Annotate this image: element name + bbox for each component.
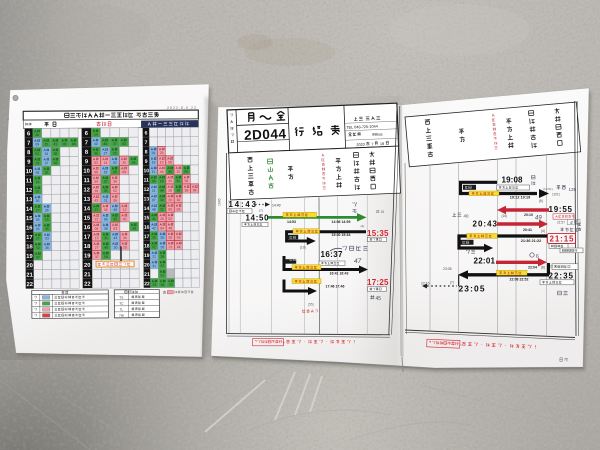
svg-text:59: 59 xyxy=(104,255,108,259)
svg-text:22:16: 22:16 xyxy=(421,281,430,285)
svg-text:25: 25 xyxy=(44,142,48,146)
svg-text:27: 27 xyxy=(95,246,99,250)
svg-text:46: 46 xyxy=(160,189,164,193)
svg-text:21:36 21:22: 21:36 21:22 xyxy=(521,239,541,243)
svg-text:22: 22 xyxy=(26,282,32,288)
svg-text:19:51: 19:51 xyxy=(552,193,560,197)
svg-text:02: 02 xyxy=(113,161,117,165)
svg-text:7: 7 xyxy=(371,142,373,146)
svg-text:50: 50 xyxy=(168,160,172,164)
svg-text:42: 42 xyxy=(152,226,156,230)
svg-text:04: 04 xyxy=(161,283,165,287)
svg-text:19:08: 19:08 xyxy=(502,175,524,184)
svg-text:36: 36 xyxy=(104,227,108,231)
svg-text:35: 35 xyxy=(152,236,156,240)
svg-text:7L: 7L xyxy=(120,308,124,312)
svg-text:26: 26 xyxy=(160,217,164,221)
svg-text:44: 44 xyxy=(160,170,164,174)
svg-text:43: 43 xyxy=(113,236,117,240)
svg-text:25: 25 xyxy=(113,151,117,155)
svg-text:38: 38 xyxy=(160,255,164,259)
svg-text:19:55: 19:55 xyxy=(549,205,573,214)
svg-text:14:56 14:59: 14:56 14:59 xyxy=(332,220,351,224)
svg-text:18: 18 xyxy=(26,244,33,250)
svg-text:17:25: 17:25 xyxy=(367,278,389,287)
svg-text:14:50: 14:50 xyxy=(246,213,270,222)
svg-text:56: 56 xyxy=(177,236,181,240)
svg-text:29: 29 xyxy=(151,151,155,155)
svg-text:13: 13 xyxy=(144,196,150,202)
svg-text:23:05: 23:05 xyxy=(459,284,485,294)
svg-text:16: 16 xyxy=(144,225,150,231)
svg-text:15: 15 xyxy=(160,160,164,164)
svg-text:13: 13 xyxy=(95,236,99,240)
svg-text:15: 15 xyxy=(26,216,33,222)
svg-text:14:43: 14:43 xyxy=(229,200,257,209)
svg-text:43: 43 xyxy=(94,199,98,203)
svg-text:04: 04 xyxy=(160,226,164,230)
svg-text:15: 15 xyxy=(45,218,49,222)
svg-text:15:30 15:34: 15:30 15:34 xyxy=(332,233,351,237)
svg-text:21: 21 xyxy=(169,245,173,249)
svg-text:41: 41 xyxy=(54,142,58,146)
svg-text:04: 04 xyxy=(36,218,40,222)
svg-text:34: 34 xyxy=(123,236,127,240)
svg-text:39: 39 xyxy=(132,227,136,231)
svg-text:52: 52 xyxy=(152,245,156,249)
svg-text:05: 05 xyxy=(36,199,40,203)
svg-text:13: 13 xyxy=(26,197,33,203)
svg-text:36: 36 xyxy=(94,151,98,155)
svg-text:22: 22 xyxy=(152,255,156,259)
svg-text:7: 7 xyxy=(145,140,148,146)
svg-text:19: 19 xyxy=(144,253,150,259)
svg-text:31: 31 xyxy=(176,179,180,183)
svg-text:18: 18 xyxy=(176,189,180,193)
svg-text:27: 27 xyxy=(36,208,40,212)
svg-text:19: 19 xyxy=(94,189,98,193)
svg-text:38: 38 xyxy=(185,188,189,192)
svg-text:09: 09 xyxy=(35,142,39,146)
svg-text:99Bus: 99Bus xyxy=(372,132,383,136)
svg-text:12: 12 xyxy=(84,187,90,193)
svg-text:04: 04 xyxy=(193,188,197,192)
svg-text:19: 19 xyxy=(152,160,156,164)
svg-text:15: 15 xyxy=(84,216,91,222)
svg-text:37: 37 xyxy=(160,264,164,268)
svg-text:23: 23 xyxy=(160,151,164,155)
svg-text:(4): (4) xyxy=(541,229,545,233)
svg-text:16: 16 xyxy=(26,226,33,232)
svg-text:03: 03 xyxy=(45,237,49,241)
svg-text:03: 03 xyxy=(113,227,117,231)
svg-text:23:08: 23:08 xyxy=(443,267,452,271)
svg-text:14: 14 xyxy=(94,133,98,137)
svg-text:35: 35 xyxy=(122,161,126,165)
svg-text:17: 17 xyxy=(26,235,32,241)
svg-text:15:35: 15:35 xyxy=(367,229,389,238)
svg-text:10: 10 xyxy=(176,198,180,202)
svg-text:40: 40 xyxy=(94,142,98,146)
svg-text:32: 32 xyxy=(45,171,49,175)
svg-text:48: 48 xyxy=(152,208,156,212)
svg-text:23: 23 xyxy=(35,161,39,165)
svg-text:22:35: 22:35 xyxy=(549,272,574,281)
svg-text:22:01: 22:01 xyxy=(474,257,496,266)
svg-text:7: 7 xyxy=(85,140,88,146)
svg-text:7W: 7W xyxy=(119,314,124,318)
svg-text:05: 05 xyxy=(36,227,40,231)
svg-text:(6): (6) xyxy=(539,199,543,203)
svg-text:19: 19 xyxy=(84,253,91,259)
svg-text:29: 29 xyxy=(152,283,156,287)
svg-text:03: 03 xyxy=(63,142,67,146)
svg-text:29: 29 xyxy=(123,245,127,249)
svg-text:(19:51): (19:51) xyxy=(543,187,553,191)
svg-text:20: 20 xyxy=(35,133,39,137)
svg-text:21:15: 21:15 xyxy=(550,235,575,244)
svg-text:2022.8.6.22: 2022.8.6.22 xyxy=(167,106,196,110)
svg-text:1645: 1645 xyxy=(218,198,222,206)
svg-text:12: 12 xyxy=(123,208,127,212)
svg-text:11: 11 xyxy=(152,170,156,174)
svg-text:34: 34 xyxy=(94,180,98,184)
svg-text:54: 54 xyxy=(132,161,136,165)
svg-text:36: 36 xyxy=(113,180,117,184)
svg-text:40: 40 xyxy=(464,214,470,219)
svg-text:135: 135 xyxy=(569,187,577,192)
svg-text:(7): (7) xyxy=(259,208,263,212)
svg-text:20: 20 xyxy=(160,245,164,249)
svg-text:21: 21 xyxy=(84,272,91,278)
svg-text:37: 37 xyxy=(45,161,49,165)
svg-text:22: 22 xyxy=(144,281,150,287)
svg-text:49: 49 xyxy=(535,216,542,222)
svg-text:20: 20 xyxy=(144,262,150,268)
svg-text:03: 03 xyxy=(94,161,98,165)
svg-text:37: 37 xyxy=(113,142,117,146)
svg-text:44: 44 xyxy=(177,245,181,249)
svg-text:10: 10 xyxy=(143,168,149,174)
svg-text:15: 15 xyxy=(176,170,180,174)
svg-text:20:41: 20:41 xyxy=(523,228,532,232)
svg-text:45: 45 xyxy=(376,296,382,302)
svg-text:(7): (7) xyxy=(450,281,454,285)
svg-text:4: 4 xyxy=(570,220,573,226)
svg-text:TS: TS xyxy=(119,296,123,300)
svg-text:21:57: 21:57 xyxy=(557,221,565,225)
svg-text:14: 14 xyxy=(144,206,150,212)
svg-text:20:43: 20:43 xyxy=(473,220,498,229)
svg-text:14: 14 xyxy=(84,206,91,212)
svg-text:03: 03 xyxy=(122,142,126,146)
svg-text:48: 48 xyxy=(168,226,172,230)
svg-text:11: 11 xyxy=(84,178,91,184)
svg-text:37: 37 xyxy=(103,151,107,155)
svg-text:21: 21 xyxy=(160,208,164,212)
svg-text:18: 18 xyxy=(104,170,108,174)
svg-text:17:46 17:46: 17:46 17:46 xyxy=(326,284,345,288)
svg-text:31: 31 xyxy=(152,217,156,221)
svg-text:20:10: 20:10 xyxy=(524,213,533,217)
svg-text:35: 35 xyxy=(104,189,108,193)
svg-text:36: 36 xyxy=(104,208,108,212)
svg-text:16:37: 16:37 xyxy=(321,250,344,259)
svg-text:11: 11 xyxy=(104,199,108,203)
svg-text:52: 52 xyxy=(36,246,40,250)
svg-text:47: 47 xyxy=(354,258,362,265)
svg-text:(4): (4) xyxy=(361,224,365,228)
svg-text:52: 52 xyxy=(35,152,39,156)
svg-text:49: 49 xyxy=(168,170,172,174)
svg-text:28: 28 xyxy=(168,189,172,193)
svg-text:35: 35 xyxy=(113,217,117,221)
svg-text:58: 58 xyxy=(36,171,40,175)
svg-text:56: 56 xyxy=(184,179,188,183)
svg-text:2022: 2022 xyxy=(356,143,365,147)
svg-text:8: 8 xyxy=(145,149,148,155)
svg-text:7: 7 xyxy=(27,141,30,147)
svg-text:22:30: 22:30 xyxy=(550,265,558,269)
svg-text:40: 40 xyxy=(113,208,117,212)
svg-text:40: 40 xyxy=(103,142,107,146)
svg-text:21: 21 xyxy=(144,272,150,278)
svg-text:14: 14 xyxy=(26,207,33,213)
svg-text:14:53: 14:53 xyxy=(287,220,296,224)
svg-text:18: 18 xyxy=(144,244,150,250)
svg-text:(10): (10) xyxy=(300,246,306,250)
svg-text:26: 26 xyxy=(45,208,49,212)
svg-text:33: 33 xyxy=(168,179,172,183)
svg-text:13: 13 xyxy=(36,180,40,184)
svg-text:12: 12 xyxy=(26,188,32,194)
svg-text:03: 03 xyxy=(54,161,58,165)
svg-text:59: 59 xyxy=(176,207,180,211)
svg-text:45: 45 xyxy=(123,217,127,221)
svg-text:35: 35 xyxy=(45,227,49,231)
svg-text:26: 26 xyxy=(168,198,172,202)
svg-text:21: 21 xyxy=(26,273,33,279)
svg-text:10: 10 xyxy=(83,169,89,175)
svg-text:15: 15 xyxy=(144,215,150,221)
svg-text:17: 17 xyxy=(84,235,90,241)
svg-text:14: 14 xyxy=(104,161,108,165)
svg-text:17: 17 xyxy=(144,234,150,240)
svg-text:9: 9 xyxy=(145,159,148,165)
svg-text:51: 51 xyxy=(161,273,165,277)
svg-text:02: 02 xyxy=(168,217,172,221)
svg-text:06: 06 xyxy=(113,198,117,202)
svg-text:18: 18 xyxy=(84,244,91,250)
svg-text:16: 16 xyxy=(84,225,91,231)
svg-text:36: 36 xyxy=(152,179,156,183)
svg-text:(8): (8) xyxy=(541,265,545,269)
svg-text:09: 09 xyxy=(122,170,126,174)
svg-text:37: 37 xyxy=(94,208,98,212)
svg-text:32: 32 xyxy=(160,198,164,202)
svg-text:15: 15 xyxy=(381,210,385,214)
svg-text:04: 04 xyxy=(95,227,99,231)
svg-text:07: 07 xyxy=(104,180,108,184)
svg-text:12: 12 xyxy=(144,187,150,193)
svg-text:TC: TC xyxy=(119,302,124,306)
svg-text:27: 27 xyxy=(36,237,40,241)
svg-text:19:12 19:19: 19:12 19:19 xyxy=(510,196,530,200)
svg-text:20: 20 xyxy=(84,263,90,269)
svg-text:06: 06 xyxy=(104,217,108,221)
svg-text:23: 23 xyxy=(95,217,99,221)
svg-text:09: 09 xyxy=(168,207,172,211)
svg-text:(16): (16) xyxy=(502,214,508,218)
svg-text:19: 19 xyxy=(380,142,384,146)
svg-text:10: 10 xyxy=(26,169,32,175)
svg-text:04: 04 xyxy=(72,142,76,146)
svg-text:36: 36 xyxy=(45,246,49,250)
svg-text:11: 11 xyxy=(26,178,33,184)
svg-text:13: 13 xyxy=(84,197,91,203)
svg-text:31: 31 xyxy=(152,264,156,268)
svg-text:36: 36 xyxy=(160,236,164,240)
svg-text:11: 11 xyxy=(144,178,150,184)
svg-text:02: 02 xyxy=(36,189,40,193)
svg-text:07: 07 xyxy=(152,198,156,202)
svg-text:49: 49 xyxy=(104,246,108,250)
svg-text:07: 07 xyxy=(36,255,40,259)
svg-text:52: 52 xyxy=(113,189,117,193)
svg-text:53: 53 xyxy=(169,283,173,287)
svg-text:(55): (55) xyxy=(308,303,314,307)
svg-text:06: 06 xyxy=(54,152,58,156)
svg-text:14:49: 14:49 xyxy=(272,204,281,208)
svg-text:6: 6 xyxy=(145,131,148,137)
svg-text:37: 37 xyxy=(95,255,99,259)
svg-text:50: 50 xyxy=(168,236,172,240)
svg-text:16:41 16:43: 16:41 16:43 xyxy=(330,272,349,276)
svg-text:2D044: 2D044 xyxy=(244,126,287,143)
svg-text:34: 34 xyxy=(44,152,48,156)
svg-text:20: 20 xyxy=(114,246,118,250)
svg-text:26: 26 xyxy=(113,170,117,174)
svg-text:20: 20 xyxy=(26,263,32,269)
svg-text:08: 08 xyxy=(94,170,98,174)
svg-text:05: 05 xyxy=(184,170,188,174)
svg-text:22:08 22:52: 22:08 22:52 xyxy=(510,277,529,281)
svg-text:22:04: 22:04 xyxy=(528,266,537,270)
svg-text:21: 21 xyxy=(152,189,156,193)
svg-text:22: 22 xyxy=(84,282,90,288)
svg-text:19: 19 xyxy=(26,254,33,260)
svg-text:19: 19 xyxy=(160,179,164,183)
svg-text:31: 31 xyxy=(104,236,108,240)
